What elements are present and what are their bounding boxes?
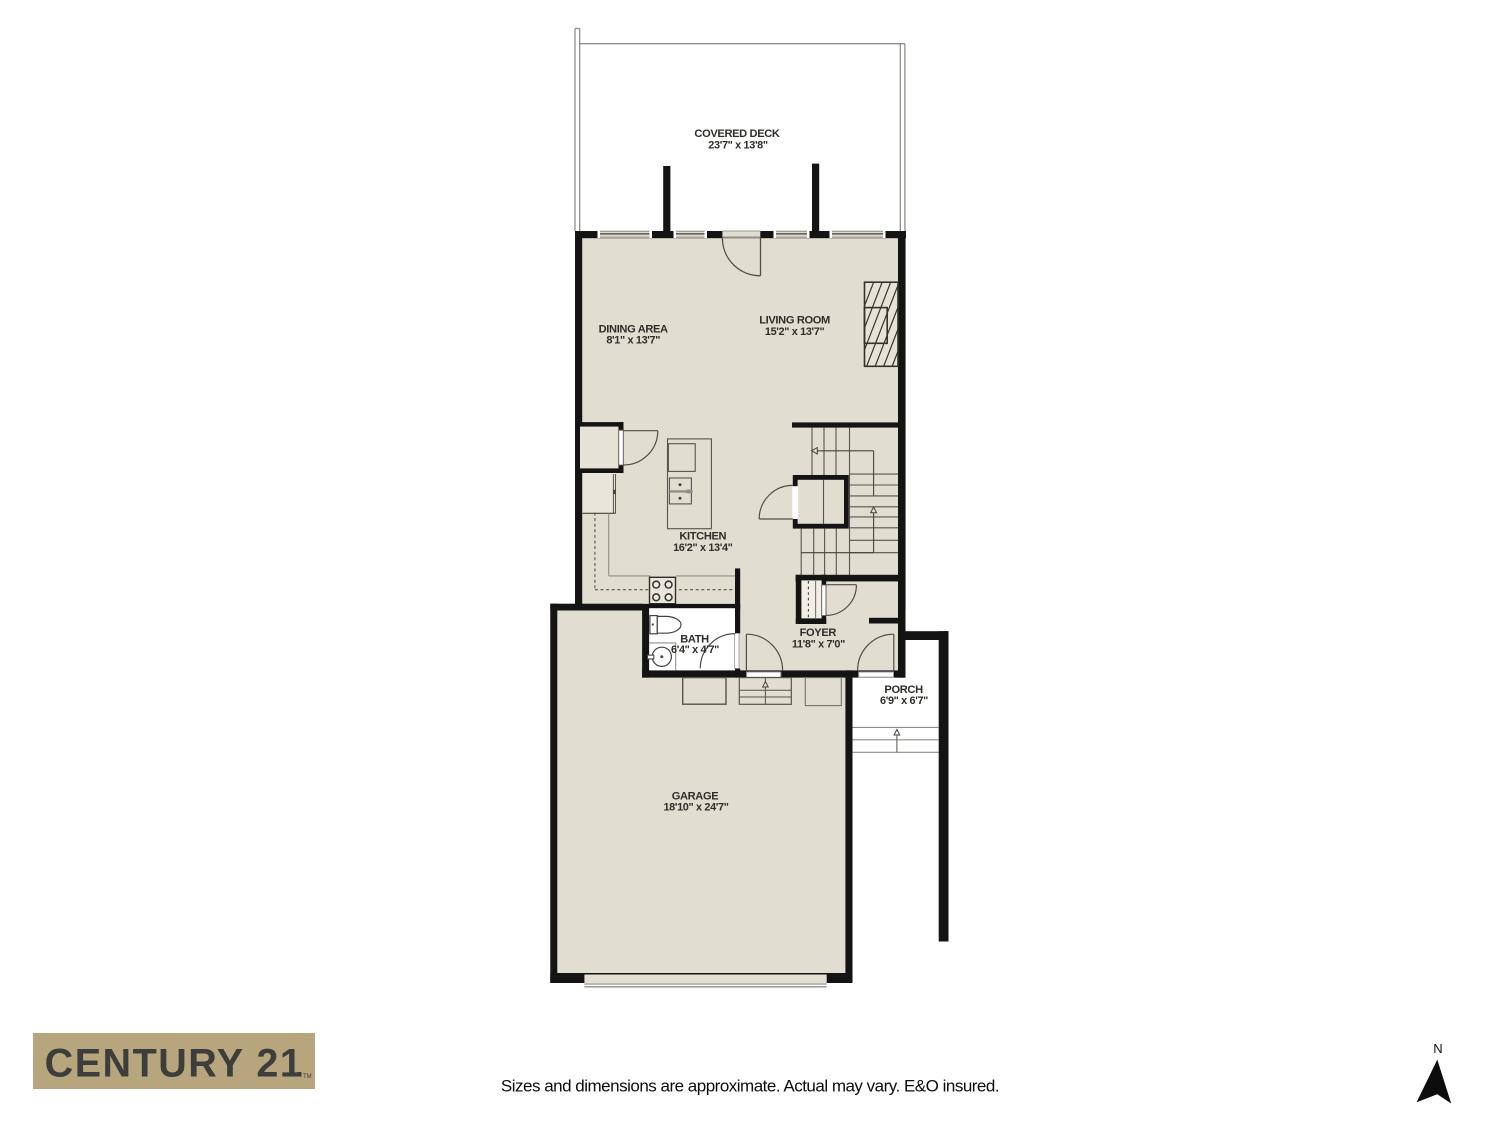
svg-text:LIVING ROOM: LIVING ROOM <box>759 315 830 327</box>
svg-text:6'4" x 4'7": 6'4" x 4'7" <box>671 644 719 656</box>
svg-text:KITCHEN: KITCHEN <box>679 531 726 543</box>
svg-text:11'8" x 7'0": 11'8" x 7'0" <box>792 639 845 651</box>
svg-text:23'7" x 13'8": 23'7" x 13'8" <box>708 139 768 151</box>
svg-text:COVERED DECK: COVERED DECK <box>694 128 780 140</box>
svg-text:6'9" x 6'7": 6'9" x 6'7" <box>880 695 928 707</box>
svg-text:Sizes and dimensions are appro: Sizes and dimensions are approximate. Ac… <box>501 1077 999 1096</box>
svg-text:TM: TM <box>303 1074 312 1080</box>
svg-text:CENTURY 21: CENTURY 21 <box>45 1042 304 1086</box>
svg-text:15'2" x 13'7": 15'2" x 13'7" <box>765 326 825 338</box>
svg-text:16'2" x 13'4": 16'2" x 13'4" <box>673 542 733 554</box>
svg-text:FOYER: FOYER <box>800 627 837 639</box>
svg-text:18'10" x 24'7": 18'10" x 24'7" <box>663 802 728 814</box>
svg-text:N: N <box>1433 1041 1442 1056</box>
svg-text:8'1" x 13'7": 8'1" x 13'7" <box>606 335 660 347</box>
